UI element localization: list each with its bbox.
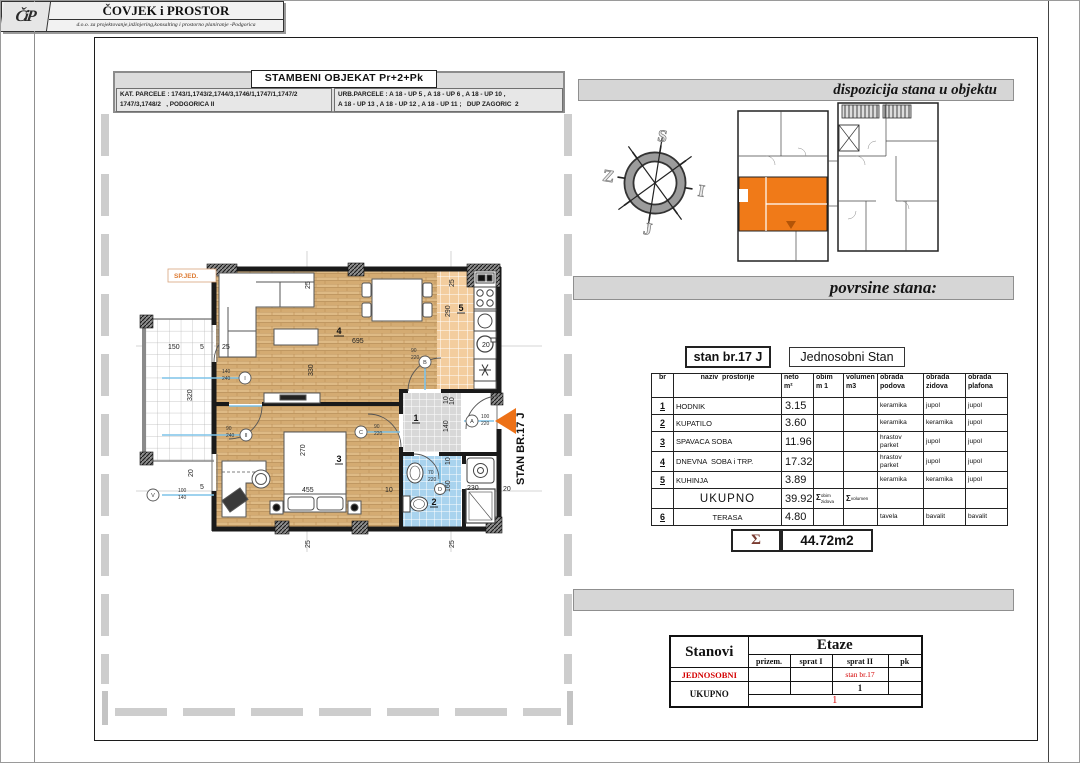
stair-core [842, 105, 879, 118]
svg-text:100: 100 [178, 488, 187, 494]
table-row: 5KUHINJA 3.89 keramikakeramikajupol [652, 472, 1008, 489]
svg-text:140: 140 [222, 369, 231, 375]
svg-text:220: 220 [428, 477, 437, 483]
fold-tick-left [102, 691, 108, 725]
jednosobni-row: JEDNOSOBNI stan br.17 [670, 668, 922, 682]
svg-text:25: 25 [222, 344, 230, 351]
drawing-sheet: STAMBENI OBJEKAT Pr+2+Pk KAT. PARCELE : … [0, 0, 1080, 763]
spacer-bar [573, 589, 1014, 611]
svg-text:270: 270 [300, 444, 307, 456]
kat-parcele: KAT. PARCELE : 1743/1,1743/2,1744/3,1746… [116, 88, 332, 112]
marker-A: A 100 220 [466, 414, 490, 427]
svg-text:C: C [359, 430, 363, 436]
svg-text:240: 240 [222, 376, 231, 382]
svg-text:230: 230 [467, 485, 479, 492]
compass-rose: S I J Z [598, 123, 713, 238]
kitchen-appliances [474, 271, 496, 389]
fold-marks-middle [564, 114, 572, 684]
svg-text:330: 330 [308, 364, 315, 376]
dining-table [372, 279, 422, 321]
svg-text:220: 220 [374, 431, 383, 437]
svg-text:220: 220 [481, 421, 490, 427]
terrace-row: 6 TERASA 4.80 tavelabavalitbavalit [652, 509, 1008, 526]
compass-south: J [642, 219, 654, 238]
total-value: 39.92 [782, 489, 814, 509]
floor-plan: SP.JED. 4 5 1 2 3 25 695 330 25 290 20 1… [134, 249, 544, 554]
svg-text:290: 290 [445, 305, 452, 317]
unit-type-box: Jednosobni Stan [789, 347, 905, 367]
table-header-row: br naziv prostorije neto m² obim m 1 vol… [652, 374, 1008, 398]
fold-marks-bottom [115, 708, 561, 716]
etaze-header: Etaze [748, 636, 922, 655]
urb-parcele: URB.PARCELE : A 18 - UP 5 , A 18 - UP 6 … [334, 88, 563, 112]
company-name: ČOVJEK i PROSTOR [49, 2, 283, 20]
svg-text:5: 5 [200, 344, 204, 351]
table-row: 2KUPATILO 3.60 keramikakeramikajupol [652, 415, 1008, 432]
compass-west: Z [601, 166, 615, 187]
title-block: ČiP ČOVJEK i PROSTOR d.o.o. za projektov… [1, 1, 284, 32]
highlighted-apartment [739, 177, 827, 231]
svg-text:140: 140 [178, 495, 187, 501]
svg-text:10: 10 [449, 397, 456, 405]
company-subtitle: d.o.o. za projektovanje,inžinjering,kons… [49, 20, 283, 31]
section-povrsine: povrsine stana: [573, 276, 1014, 300]
total-label: UKUPNO [674, 489, 782, 509]
ukupno-total: 1 [748, 695, 922, 708]
svg-text:150: 150 [168, 344, 180, 351]
toilet [411, 497, 428, 511]
svg-text:20: 20 [482, 342, 490, 349]
room-1-label: 1 [413, 413, 418, 423]
building-title: STAMBENI OBJEKAT Pr+2+Pk [251, 70, 437, 88]
svg-text:25: 25 [305, 281, 312, 289]
svg-text:320: 320 [187, 389, 194, 401]
svg-text:20: 20 [503, 486, 511, 493]
svg-text:90: 90 [226, 426, 232, 432]
company-logo: ČiP [0, 2, 51, 31]
compass-east: I [697, 181, 707, 201]
svg-text:10: 10 [385, 487, 393, 494]
svg-text:25: 25 [449, 540, 456, 548]
svg-text:240: 240 [226, 433, 235, 439]
room-5-label: 5 [458, 303, 463, 313]
table-row: 4DNEVNA SOBA i TRP. 17.32 hrastov parket… [652, 452, 1008, 472]
ukupno-row: UKUPNO 1 [670, 682, 922, 695]
svg-text:5: 5 [200, 484, 204, 491]
table-row: 1HODNIK 3.15 keramikajupoljupol [652, 398, 1008, 415]
svg-text:100: 100 [481, 414, 490, 420]
svg-text:70: 70 [428, 470, 434, 476]
svg-text:25: 25 [449, 279, 456, 287]
fold-marks-left [101, 114, 109, 684]
total-row: UKUPNO 39.92 Σobim zidova Σvolumen [652, 489, 1008, 509]
svg-text:A: A [470, 419, 474, 425]
svg-text:90: 90 [374, 424, 380, 430]
elevator-shaft [839, 125, 859, 151]
svg-text:D: D [438, 487, 442, 493]
stove [474, 287, 496, 309]
sheet-edge-line-right [1048, 1, 1049, 762]
room-2-label: 2 [431, 497, 436, 507]
svg-text:140: 140 [443, 420, 450, 432]
fold-tick-right [567, 691, 573, 725]
unit-number-box: stan br.17 J [685, 346, 771, 368]
floors-table: Stanovi Etaze prizem. sprat I sprat II p… [669, 635, 923, 708]
coffee-table [274, 329, 318, 345]
kitchen-floor [437, 271, 474, 389]
tv [280, 395, 306, 400]
svg-text:II: II [244, 433, 248, 439]
svg-text:V: V [151, 493, 155, 499]
sp-jed-label: SP.JED. [168, 269, 216, 282]
toilet-tank [403, 496, 410, 512]
room-3-label: 3 [336, 454, 341, 464]
svg-text:695: 695 [352, 338, 364, 345]
svg-text:90: 90 [411, 348, 417, 354]
svg-text:160: 160 [445, 480, 452, 492]
table-row: 3SPAVACA SOBA 11.96 hrastov parketjupolj… [652, 432, 1008, 452]
svg-text:20: 20 [188, 469, 195, 477]
washing-machine [467, 458, 494, 483]
building-site-plan [736, 101, 941, 269]
room-4-label: 4 [336, 326, 341, 336]
svg-text:B: B [423, 360, 427, 366]
sum-sigma-box: Σ [731, 529, 781, 552]
terrace-floor [144, 319, 214, 461]
sheet-edge-line [34, 1, 35, 762]
svg-text:SP.JED.: SP.JED. [174, 273, 198, 280]
svg-text:25: 25 [305, 540, 312, 548]
sum-total-box: 44.72m2 [781, 529, 873, 552]
svg-text:220: 220 [411, 355, 420, 361]
room-areas-table: br naziv prostorije neto m² obim m 1 vol… [651, 373, 1008, 526]
section-dispozicija: dispozicija stana u objektu [578, 79, 1014, 101]
unit-arrow-label: STAN BR.17 J [515, 412, 527, 485]
svg-text:10: 10 [443, 396, 450, 404]
svg-text:10: 10 [445, 457, 452, 465]
stanovi-header: Stanovi [670, 636, 748, 668]
svg-text:455: 455 [302, 487, 314, 494]
compass-north: S [656, 126, 668, 146]
